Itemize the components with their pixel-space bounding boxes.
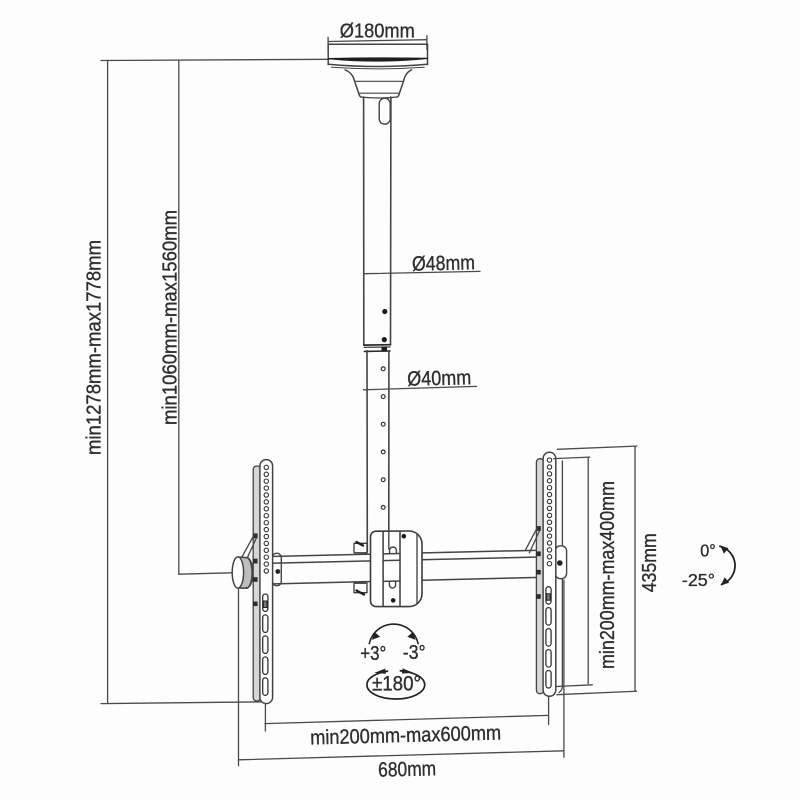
svg-text:Ø180mm: Ø180mm <box>340 20 415 43</box>
svg-text:min1278mm-max1778mm: min1278mm-max1778mm <box>83 240 106 455</box>
svg-text:435mm: 435mm <box>638 533 661 592</box>
svg-text:min200mm-max400mm: min200mm-max400mm <box>596 481 619 669</box>
svg-text:+3°: +3° <box>360 642 386 665</box>
svg-text:680mm: 680mm <box>378 757 437 781</box>
svg-text:0°: 0° <box>700 541 716 561</box>
svg-text:±180°: ±180° <box>372 673 421 696</box>
svg-text:-3°: -3° <box>403 641 426 664</box>
svg-text:min1060mm-max1560mm: min1060mm-max1560mm <box>159 210 182 425</box>
svg-text:-25°: -25° <box>682 570 715 590</box>
